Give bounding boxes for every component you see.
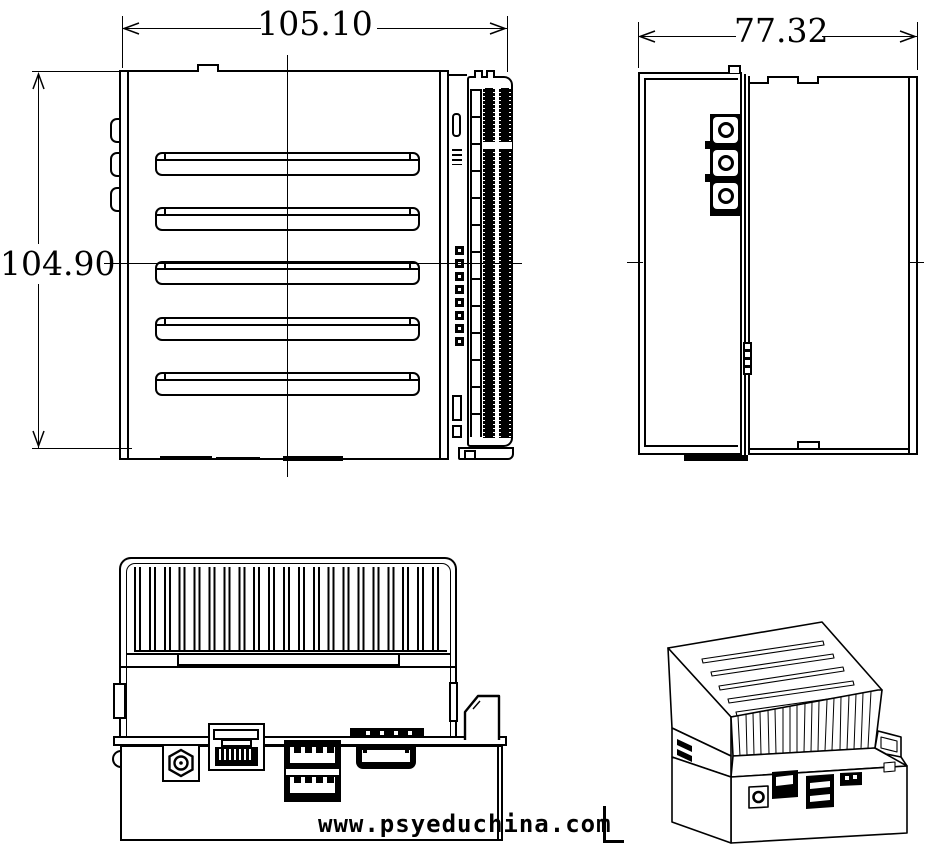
iso-power-jack: [749, 786, 768, 808]
frame-corner-mark: [603, 806, 606, 843]
iso-usb: [806, 774, 834, 809]
iso-small-square: [884, 762, 895, 772]
watermark-text: www.psyeduchina.com: [318, 810, 612, 838]
frame-corner-mark: [603, 840, 624, 843]
rail-clip: [465, 696, 499, 740]
drawing-overlay: [0, 0, 925, 846]
isometric-device: [668, 622, 907, 843]
iso-connector: [840, 772, 862, 786]
